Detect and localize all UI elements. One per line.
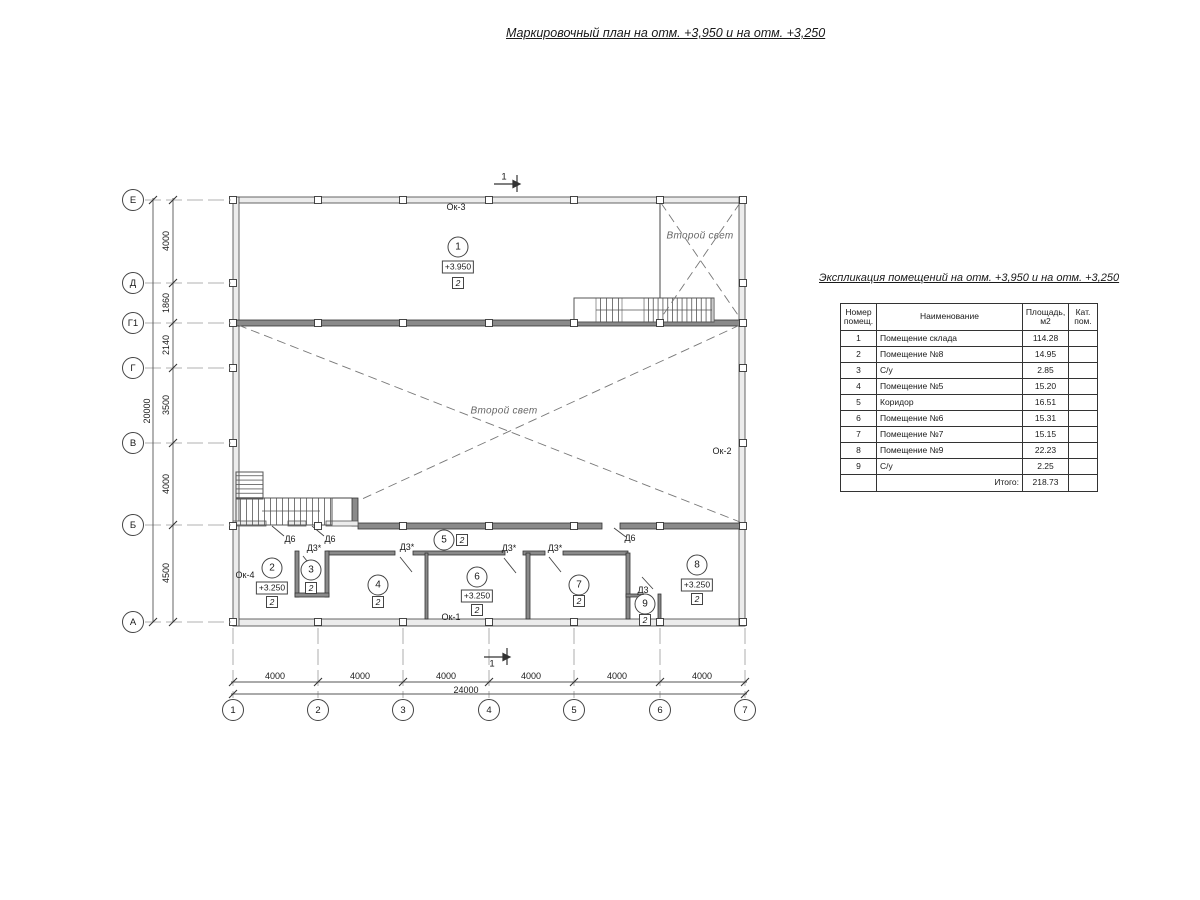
- dim-left-3: 2140: [161, 335, 171, 355]
- table-cell: Помещение №6: [877, 411, 1023, 427]
- category-box-room-9: 2: [639, 614, 651, 626]
- category-box-room-1: 2: [452, 277, 464, 289]
- window-label-ok2: Ок-2: [713, 446, 732, 456]
- door-label-d3s-1: Д3*: [307, 543, 322, 553]
- table-total-label: Итого:: [877, 475, 1023, 491]
- door-label-d3: Д3: [637, 585, 648, 595]
- table-cell: [1069, 379, 1097, 395]
- table-cell: Помещение №5: [877, 379, 1023, 395]
- dim-bottom-1: 4000: [265, 671, 285, 681]
- table-cell: 2.85: [1023, 363, 1069, 379]
- axis-row-circle-e: Е: [122, 189, 144, 211]
- axis-col-circle-3: 3: [392, 699, 414, 721]
- door-label-d3s-4: Д3*: [548, 543, 563, 553]
- room-marker-8: 8: [687, 555, 708, 576]
- category-box-room-2: 2: [266, 596, 278, 608]
- table-cell: Коридор: [877, 395, 1023, 411]
- table-cell-empty: [841, 475, 877, 491]
- room-marker-5: 5: [434, 530, 455, 551]
- table-cell: 15.31: [1023, 411, 1069, 427]
- dim-left-2: 1860: [161, 293, 171, 313]
- axis-col-circle-1: 1: [222, 699, 244, 721]
- table-cell: 15.15: [1023, 427, 1069, 443]
- dim-bottom-3: 4000: [436, 671, 456, 681]
- table-cell: 16.51: [1023, 395, 1069, 411]
- table-cell: С/у: [877, 363, 1023, 379]
- category-box-room-5: 2: [456, 534, 468, 546]
- table-cell: 4: [841, 379, 877, 395]
- axis-row-circle-g: Г: [122, 357, 144, 379]
- explication-title: Экспликация помещений на отм. +3,950 и н…: [819, 272, 1119, 284]
- window-label-ok4: Ок-4: [236, 570, 255, 580]
- category-box-room-8: 2: [691, 593, 703, 605]
- dim-left-1: 4000: [161, 231, 171, 251]
- axis-col-circle-2: 2: [307, 699, 329, 721]
- room-marker-1: 1: [448, 237, 469, 258]
- explication-table: Номер помещ. Наименование Площадь, м2 Ка…: [840, 303, 1098, 492]
- door-label-d6-3: Д6: [624, 533, 635, 543]
- door-label-d6-1: Д6: [284, 534, 295, 544]
- drawing-title: Маркировочный план на отм. +3,950 и на о…: [506, 26, 825, 40]
- axis-row-circle-a: А: [122, 611, 144, 633]
- table-cell: 14.95: [1023, 347, 1069, 363]
- table-cell: 5: [841, 395, 877, 411]
- table-cell: [1069, 411, 1097, 427]
- section-mark-bottom-label: 1: [489, 659, 494, 670]
- upper-partition: [332, 203, 660, 498]
- void-cross-lines: [238, 203, 740, 522]
- table-cell: [1069, 427, 1097, 443]
- dim-bottom-4: 4000: [521, 671, 541, 681]
- second-light-label-main: Второй свет: [471, 406, 538, 417]
- axis-col-circle-5: 5: [563, 699, 585, 721]
- table-cell: Помещение №9: [877, 443, 1023, 459]
- dim-bottom-6: 4000: [692, 671, 712, 681]
- table-cell-empty: [1069, 475, 1097, 491]
- room-marker-3: 3: [301, 560, 322, 581]
- drawing-sheet: Маркировочный план на отм. +3,950 и на о…: [0, 0, 1200, 900]
- category-box-room-3: 2: [305, 582, 317, 594]
- table-cell: 7: [841, 427, 877, 443]
- elevation-label-room-8: +3.250: [681, 579, 713, 592]
- door-label-d3s-3: Д3*: [502, 543, 517, 553]
- table-cell: [1069, 459, 1097, 475]
- category-box-room-6: 2: [471, 604, 483, 616]
- axis-row-circle-d: Д: [122, 272, 144, 294]
- table-cell: 9: [841, 459, 877, 475]
- room-marker-4: 4: [368, 575, 389, 596]
- table-cell: 2: [841, 347, 877, 363]
- table-total-value: 218.73: [1023, 475, 1069, 491]
- room-marker-2: 2: [262, 558, 283, 579]
- door-label-d3s-2: Д3*: [400, 542, 415, 552]
- section-mark-top-label: 1: [501, 172, 506, 183]
- window-label-ok1: Ок-1: [442, 612, 461, 622]
- elevation-label-room-6: +3.250: [461, 590, 493, 603]
- table-header-name: Наименование: [877, 304, 1023, 331]
- axis-row-circle-g1: Г1: [122, 312, 144, 334]
- dim-left-4: 3500: [161, 395, 171, 415]
- dim-left-5: 4000: [161, 474, 171, 494]
- category-box-room-7: 2: [573, 595, 585, 607]
- table-cell: Помещение №7: [877, 427, 1023, 443]
- dim-left-6: 4500: [161, 563, 171, 583]
- table-cell: 6: [841, 411, 877, 427]
- room-marker-7: 7: [569, 575, 590, 596]
- room-marker-9: 9: [635, 594, 656, 615]
- table-cell: 114.28: [1023, 331, 1069, 347]
- table-cell: [1069, 443, 1097, 459]
- table-cell: 22.23: [1023, 443, 1069, 459]
- axis-col-circle-6: 6: [649, 699, 671, 721]
- table-cell: 1: [841, 331, 877, 347]
- table-cell: [1069, 363, 1097, 379]
- table-cell: [1069, 395, 1097, 411]
- elevation-label-room-1: +3.950: [442, 261, 474, 274]
- table-cell: 15.20: [1023, 379, 1069, 395]
- elevation-label-room-2: +3.250: [256, 582, 288, 595]
- table-cell: 2.25: [1023, 459, 1069, 475]
- table-cell: Помещение №8: [877, 347, 1023, 363]
- axis-row-circle-v: В: [122, 432, 144, 454]
- axis-col-circle-4: 4: [478, 699, 500, 721]
- dim-bottom-5: 4000: [607, 671, 627, 681]
- axis-col-circle-7: 7: [734, 699, 756, 721]
- table-cell: [1069, 331, 1097, 347]
- window-label-ok3: Ок-3: [447, 202, 466, 212]
- table-cell: [1069, 347, 1097, 363]
- table-cell: 3: [841, 363, 877, 379]
- table-header-number: Номер помещ.: [841, 304, 877, 331]
- table-cell: Помещение склада: [877, 331, 1023, 347]
- room-marker-6: 6: [467, 567, 488, 588]
- second-light-label-upper: Второй свет: [667, 231, 734, 242]
- category-box-room-4: 2: [372, 596, 384, 608]
- table-header-area: Площадь, м2: [1023, 304, 1069, 331]
- axis-row-circle-b: Б: [122, 514, 144, 536]
- door-label-d6-2: Д6: [324, 534, 335, 544]
- dim-bottom-total: 24000: [453, 685, 478, 695]
- table-cell: С/у: [877, 459, 1023, 475]
- dim-bottom-2: 4000: [350, 671, 370, 681]
- dim-left-total: 20000: [142, 398, 152, 423]
- table-header-cat: Кат. пом.: [1069, 304, 1097, 331]
- table-cell: 8: [841, 443, 877, 459]
